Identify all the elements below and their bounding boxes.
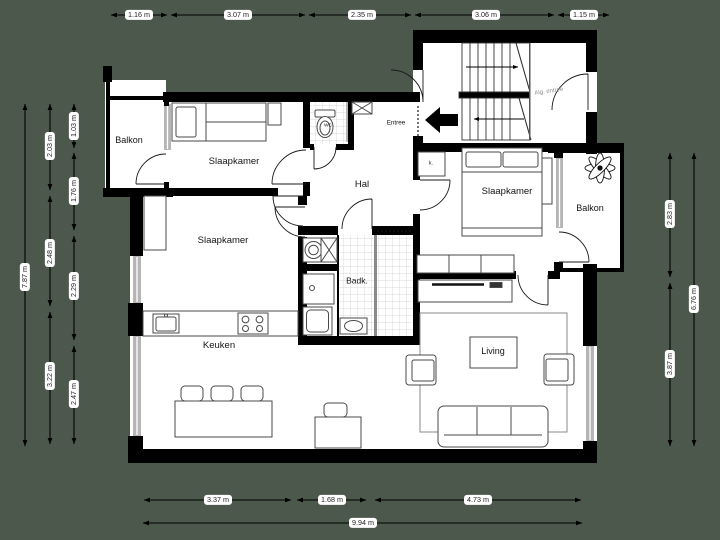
- sofa-icon: [438, 406, 548, 447]
- dim-label: 2.03 m: [45, 132, 55, 160]
- room-label-entree: Entree: [387, 121, 406, 128]
- dim-label: 3.87 m: [665, 350, 675, 378]
- plant-icon: [585, 153, 615, 183]
- kitchen-counter-icon: [143, 311, 298, 336]
- room-label-slaapkamer-mid-left: Slaapkamer: [198, 236, 249, 246]
- room-label-slaapkamer-top-left: Slaapkamer: [209, 157, 260, 167]
- room-label-balkon-left: Balkon: [115, 136, 143, 146]
- dim-label: 2.83 m: [665, 200, 675, 228]
- room-label-kast: k.: [429, 161, 433, 167]
- room-label-balkon-right: Balkon: [576, 204, 604, 214]
- room-label-keuken: Keuken: [203, 341, 235, 351]
- dim-label: 1.03 m: [69, 112, 79, 140]
- dim-label: 9.94 m: [349, 518, 377, 528]
- staircase-icon: [459, 43, 531, 140]
- dim-label: 3.37 m: [204, 495, 232, 505]
- dim-label: 3.07 m: [224, 10, 252, 20]
- shower-icon: [303, 274, 334, 304]
- dim-label: 1.16 m: [125, 10, 153, 20]
- dining-table-icon: [175, 386, 272, 437]
- room-label-slaapkamer-right: Slaapkamer: [482, 187, 533, 197]
- dim-label: 4.73 m: [464, 495, 492, 505]
- sideboard-tv-icon: [418, 280, 512, 302]
- armchair-left-icon: [406, 355, 436, 385]
- floorplan-drawing: [0, 0, 720, 540]
- dim-label: 2.47 m: [69, 380, 79, 408]
- floorplan-page: 1.16 m 3.07 m 2.35 m 3.06 m 1.15 m 7.87 …: [0, 0, 720, 540]
- wardrobe-right-icon: [417, 255, 514, 273]
- bath-tray-icon: [303, 307, 332, 335]
- dim-label: 3.06 m: [472, 10, 500, 20]
- dim-label: 7.87 m: [20, 263, 30, 291]
- dim-label: 1.68 m: [318, 495, 346, 505]
- dim-label: 6.76 m: [689, 285, 699, 313]
- room-label-wc: WC: [324, 123, 332, 128]
- room-label-hal: Hal: [355, 180, 369, 190]
- dim-label: 2.29 m: [69, 272, 79, 300]
- room-label-living: Living: [481, 347, 505, 357]
- wardrobe-icon: [144, 196, 166, 250]
- dim-label: 3.22 m: [45, 362, 55, 390]
- dim-label: 2.48 m: [45, 239, 55, 267]
- bathroom-sink-icon: [340, 318, 367, 334]
- single-bed-icon: [172, 103, 281, 141]
- bathroom-closet-icon: [321, 238, 337, 262]
- room-label-badkamer: Badk.: [346, 276, 368, 285]
- dim-label: 1.15 m: [570, 10, 598, 20]
- dim-label: 2.35 m: [348, 10, 376, 20]
- armchair-right-icon: [544, 354, 574, 385]
- dim-label: 1.76 m: [69, 177, 79, 205]
- closet-icon: [352, 102, 372, 114]
